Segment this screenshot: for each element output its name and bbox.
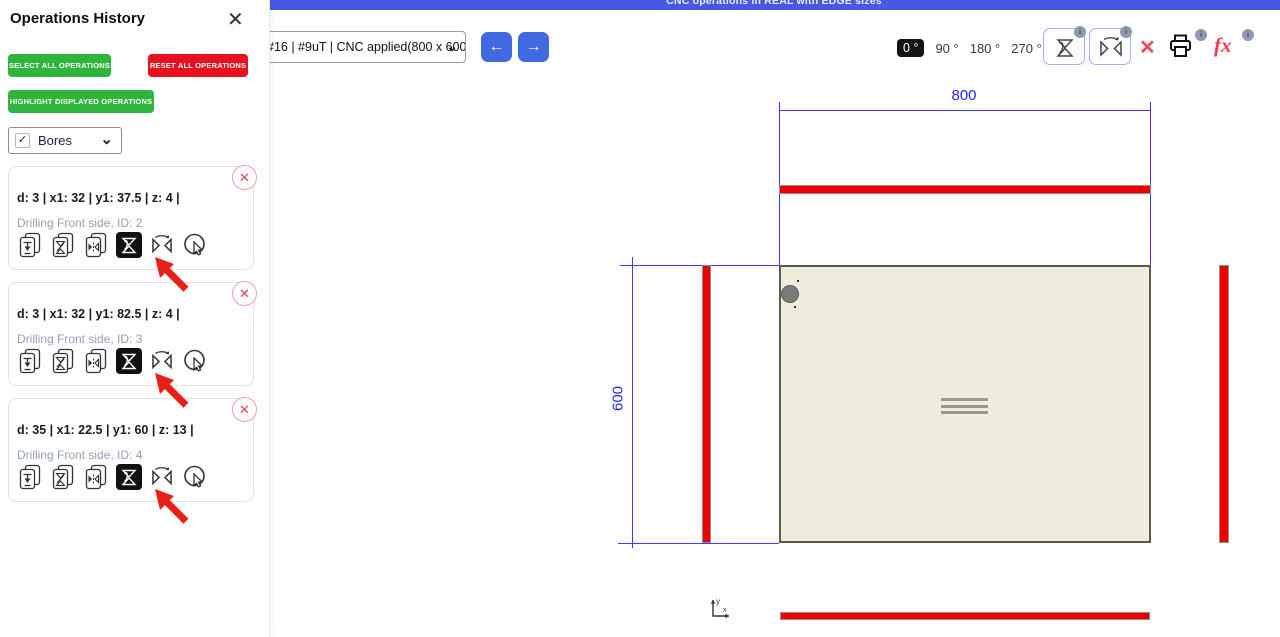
filter-label: Bores: [38, 133, 72, 148]
mirror-horizontal-doc-icon[interactable]: [83, 464, 109, 490]
chevron-down-icon: ⌄: [100, 130, 113, 148]
grain-mark: [941, 411, 988, 414]
arrow-right-icon: →: [526, 38, 542, 55]
operation-values: d: 3 | x1: 32 | y1: 37.5 | z: 4 |: [17, 191, 180, 205]
board-select[interactable]: #16 | #9uT | CNC applied(800 x 600 ⌄: [257, 31, 466, 63]
flip-vertical-doc-icon[interactable]: [50, 464, 76, 490]
info-icon: i: [1074, 26, 1086, 38]
edge-band-bottom[interactable]: [780, 612, 1150, 620]
operation-subtitle: Drilling Front side, ID: 3: [17, 332, 142, 346]
pick-cursor-icon[interactable]: [182, 348, 208, 374]
grain-mark: [941, 405, 988, 408]
grain-mark: [941, 398, 988, 401]
axis-y-label: y: [716, 597, 720, 606]
nav-forward-button[interactable]: →: [518, 32, 549, 62]
mirror-horizontal-doc-icon[interactable]: [83, 232, 109, 258]
arrow-left-icon: ←: [489, 38, 505, 55]
rotation-90-button[interactable]: 90 °: [935, 41, 958, 56]
flip-vertical-selected-icon[interactable]: [116, 464, 142, 490]
rotation-group: 0 ° 90 ° 180 ° 270 ° i: [897, 37, 1058, 59]
flip-vertical-doc-icon[interactable]: [50, 348, 76, 374]
operation-card: d: 3 | x1: 32 | y1: 37.5 | z: 4 | Drilli…: [8, 166, 254, 270]
drilling-operation-icon[interactable]: [17, 232, 43, 258]
dimension-width-line: [779, 110, 1151, 111]
operation-type-filter[interactable]: ✓ Bores ⌄: [8, 127, 122, 154]
drilling-operation-icon[interactable]: [17, 464, 43, 490]
dimension-height-label: 600: [610, 381, 627, 417]
reset-all-operations-button[interactable]: RESET ALL OPERATIONS: [148, 54, 248, 77]
board-select-value: #16 | #9uT | CNC applied(800 x 600: [267, 40, 466, 54]
extension-line-left: [779, 102, 780, 265]
rotation-180-button[interactable]: 180 °: [970, 41, 1001, 56]
operation-subtitle: Drilling Front side, ID: 4: [17, 448, 142, 462]
highlight-displayed-operations-button[interactable]: HIGHLIGHT DISPLAYED OPERATIONS: [8, 90, 154, 113]
flip-vertical-doc-icon[interactable]: [50, 232, 76, 258]
pick-cursor-icon[interactable]: [182, 464, 208, 490]
formula-button[interactable]: fx: [1214, 33, 1232, 58]
select-all-operations-button[interactable]: SELECT ALL OPERATIONS: [8, 54, 111, 77]
top-banner: CNC operations in REAL with EDGE sizes: [268, 0, 1280, 10]
info-icon[interactable]: i: [1195, 29, 1207, 41]
panel-title: Operations History: [10, 10, 145, 27]
flip-vertical-selected-icon[interactable]: [116, 232, 142, 258]
selection-dot: [794, 306, 796, 308]
axis-x-label: x: [723, 607, 727, 614]
extension-line-bottom: [618, 543, 779, 544]
operations-history-panel: Operations History ✕ SELECT ALL OPERATIO…: [0, 0, 270, 637]
flip-vertical-icon: [1050, 33, 1080, 63]
nav-back-button[interactable]: ←: [481, 32, 512, 62]
operation-card: d: 35 | x1: 22.5 | y1: 60 | z: 13 | Dril…: [8, 398, 254, 502]
info-icon[interactable]: i: [1242, 29, 1254, 41]
extension-line-right: [1150, 102, 1151, 265]
selection-dot: [797, 280, 799, 282]
mirror-horizontal-icon[interactable]: [149, 232, 175, 258]
chevron-down-icon: ⌄: [446, 38, 458, 55]
operation-icons-row: [17, 464, 208, 490]
rotation-0-button[interactable]: 0 °: [897, 39, 924, 57]
dimension-width-label: 800: [942, 87, 986, 104]
remove-operation-button[interactable]: ✕: [232, 165, 257, 190]
origin-axis-icon: y x: [706, 592, 736, 622]
dimension-height-line: [632, 257, 633, 548]
operation-icons-row: [17, 232, 208, 258]
drilling-operation-icon[interactable]: [17, 348, 43, 374]
clear-operations-button[interactable]: ✕: [1139, 35, 1156, 60]
operation-subtitle: Drilling Front side, ID: 2: [17, 216, 142, 230]
operation-values: d: 3 | x1: 32 | y1: 82.5 | z: 4 |: [17, 307, 180, 321]
operation-icons-row: [17, 348, 208, 374]
mirror-horizontal-icon[interactable]: [149, 348, 175, 374]
printer-icon: [1167, 32, 1194, 61]
extension-line-top: [620, 265, 779, 266]
edge-band-top[interactable]: [779, 185, 1151, 194]
operation-card: d: 3 | x1: 32 | y1: 82.5 | z: 4 | Drilli…: [8, 282, 254, 386]
mirror-horizontal-doc-icon[interactable]: [83, 348, 109, 374]
flip-vertical-button[interactable]: i: [1043, 28, 1085, 65]
remove-operation-button[interactable]: ✕: [232, 281, 257, 306]
mirror-horizontal-icon[interactable]: [149, 464, 175, 490]
remove-operation-button[interactable]: ✕: [232, 397, 257, 422]
checkbox-checked-icon[interactable]: ✓: [15, 133, 30, 148]
app-root: CNC operations in REAL with EDGE sizes #…: [0, 0, 1280, 637]
close-icon[interactable]: ✕: [227, 7, 244, 32]
flip-vertical-selected-icon[interactable]: [116, 348, 142, 374]
flip-horizontal-icon: [1096, 33, 1126, 63]
flip-horizontal-button[interactable]: i: [1089, 28, 1131, 65]
edge-band-right[interactable]: [1219, 265, 1229, 543]
pick-cursor-icon[interactable]: [182, 232, 208, 258]
bore-hole[interactable]: [781, 285, 799, 303]
top-banner-text: CNC operations in REAL with EDGE sizes: [268, 0, 1280, 7]
info-icon: i: [1120, 26, 1132, 38]
edge-band-left[interactable]: [702, 265, 711, 543]
operation-values: d: 35 | x1: 22.5 | y1: 60 | z: 13 |: [17, 423, 194, 437]
rotation-270-button[interactable]: 270 °: [1011, 41, 1042, 56]
print-button[interactable]: [1167, 32, 1194, 66]
